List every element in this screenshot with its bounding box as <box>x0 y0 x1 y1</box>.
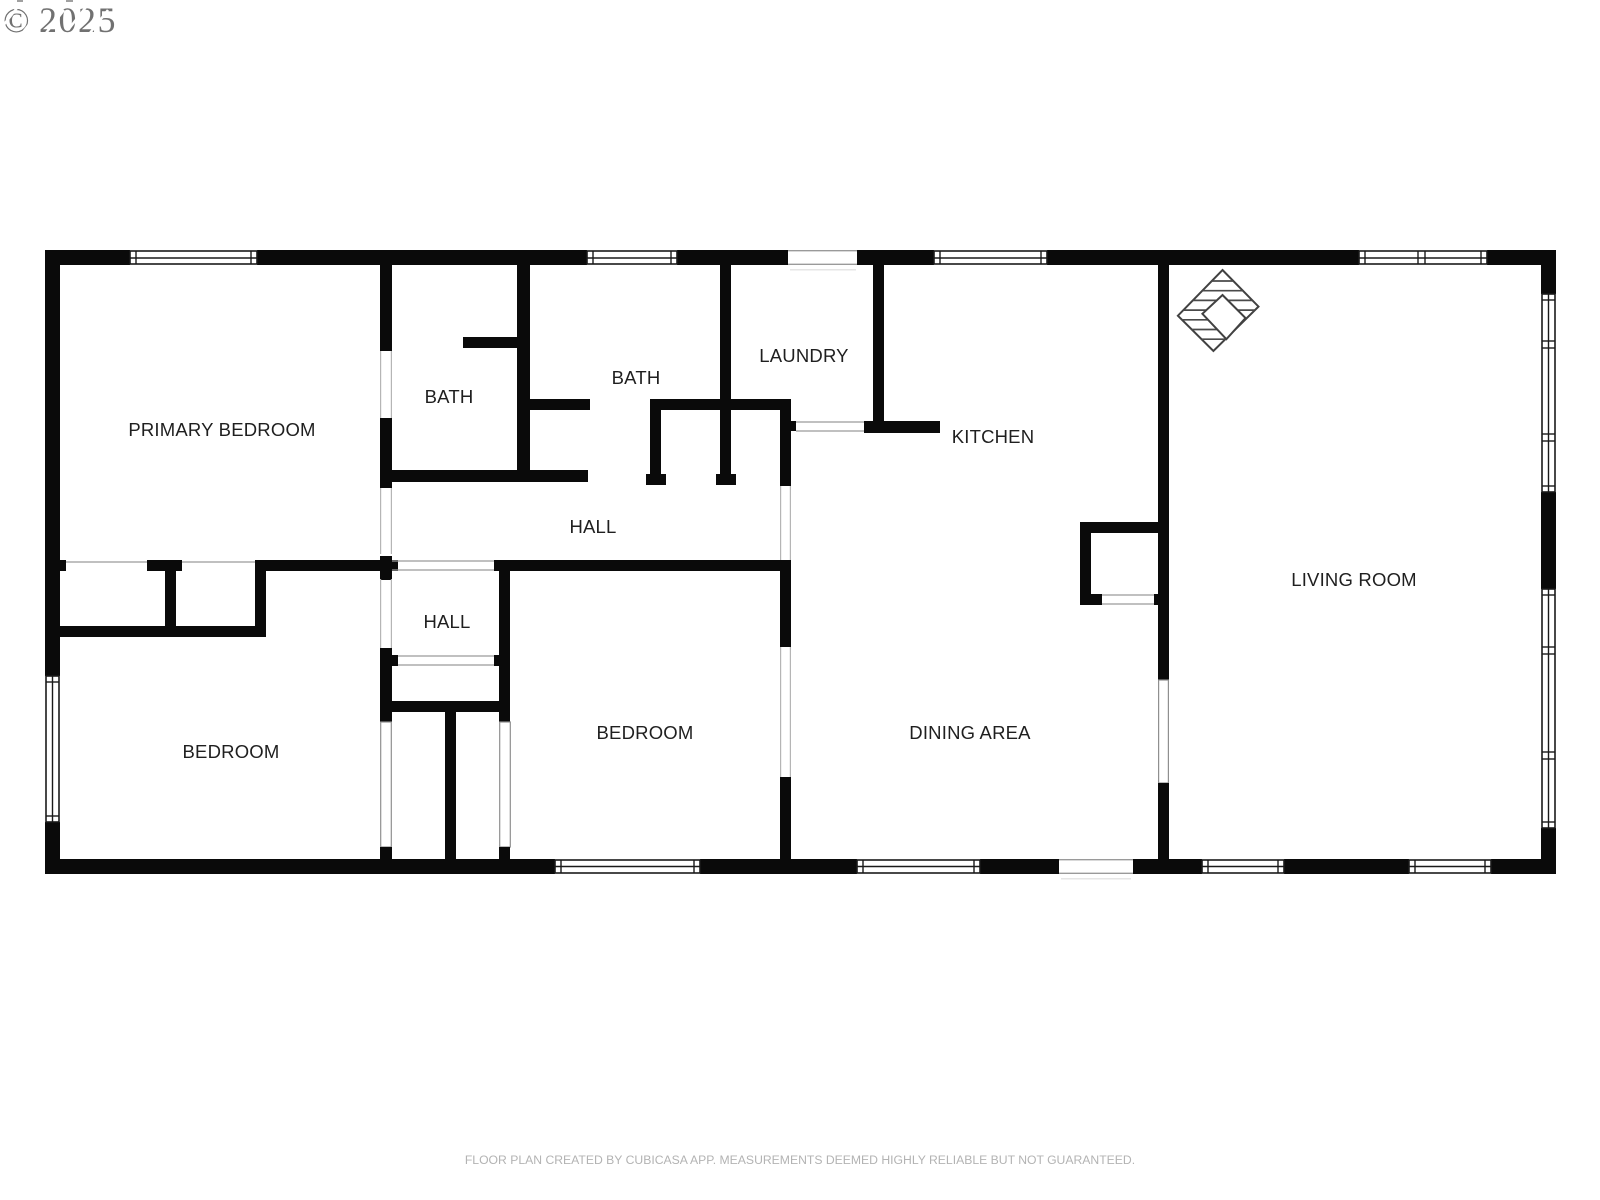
svg-text:HALL: HALL <box>423 611 470 632</box>
svg-text:FLOOR PLAN CREATED BY CUBICASA: FLOOR PLAN CREATED BY CUBICASA APP. MEAS… <box>465 1153 1135 1167</box>
svg-text:KITCHEN: KITCHEN <box>952 426 1035 447</box>
svg-text:DINING AREA: DINING AREA <box>909 722 1031 743</box>
svg-text:2025: 2025 <box>39 0 117 40</box>
svg-text:PRIMARY BEDROOM: PRIMARY BEDROOM <box>128 419 315 440</box>
svg-text:BATH: BATH <box>425 386 474 407</box>
svg-text:BATH: BATH <box>612 367 661 388</box>
svg-text:BEDROOM: BEDROOM <box>183 741 280 762</box>
svg-text:LIVING ROOM: LIVING ROOM <box>1291 569 1417 590</box>
svg-text:HALL: HALL <box>569 516 616 537</box>
svg-text:BEDROOM: BEDROOM <box>597 722 694 743</box>
svg-text:LAUNDRY: LAUNDRY <box>759 345 848 366</box>
